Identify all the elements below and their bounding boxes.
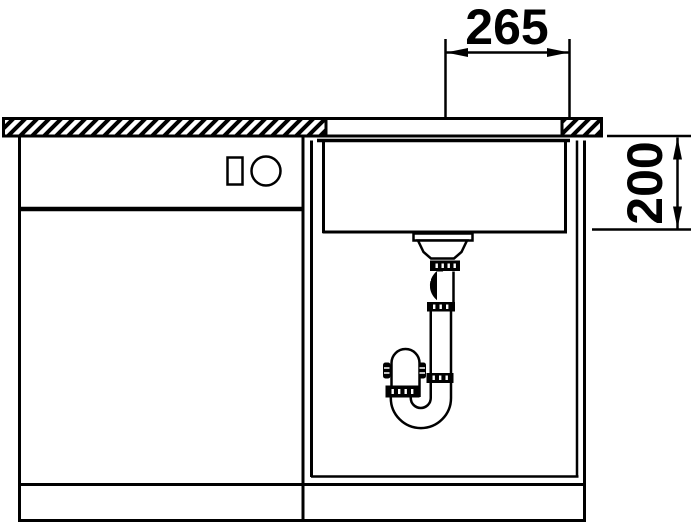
countertop (4, 119, 602, 137)
siphon-rib-right (419, 363, 427, 379)
trap-nut (386, 386, 420, 398)
countertop-section-hatch-left (4, 119, 327, 137)
technical-drawing-canvas: 265 200 (0, 0, 692, 525)
countertop-section-hatch-right (562, 119, 602, 137)
dimension-200-label: 200 (617, 141, 673, 224)
slip-nut-2 (427, 302, 455, 312)
slip-nut-1 (430, 261, 460, 272)
background (0, 0, 692, 525)
sink-installation-drawing: 265 200 (0, 0, 692, 525)
siphon-rib-left (383, 363, 391, 379)
dimension-265-label: 265 (465, 0, 548, 55)
slip-nut-3 (427, 373, 454, 383)
